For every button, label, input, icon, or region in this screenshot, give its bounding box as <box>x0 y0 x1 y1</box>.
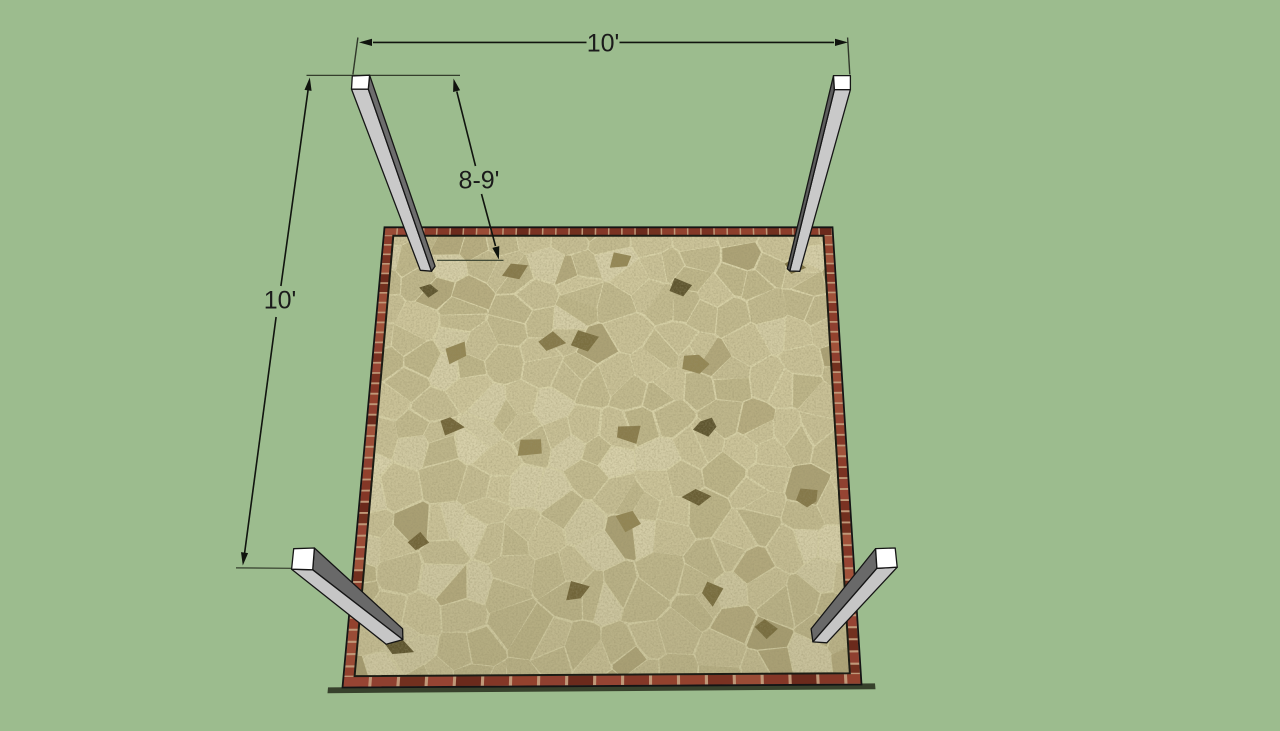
svg-text:10': 10' <box>587 30 620 58</box>
svg-text:8-9': 8-9' <box>459 167 500 195</box>
svg-text:10': 10' <box>264 287 297 315</box>
